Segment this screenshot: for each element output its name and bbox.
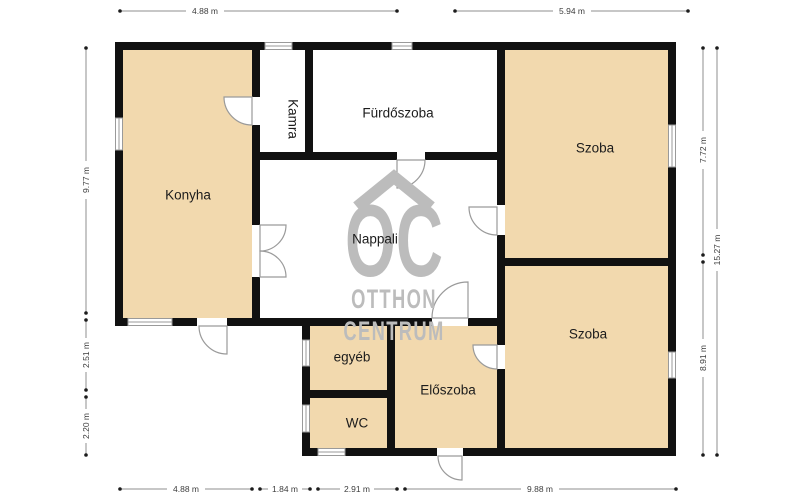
dim-label-left-1: 9.77 m	[81, 167, 91, 193]
room-label-szoba-top: Szoba	[576, 141, 615, 156]
dimension-right-2: 8.91 m	[698, 260, 709, 457]
dimension-bottom-2: 1.84 m	[258, 484, 312, 495]
dim-label-top-right: 5.94 m	[559, 6, 585, 16]
window-wc-bottom	[318, 449, 345, 456]
room-label-nappali: Nappali	[352, 232, 398, 247]
dimension-top-right: 5.94 m	[453, 6, 690, 17]
room-label-kamra: Kamra	[286, 99, 301, 139]
door-szoba-top	[469, 207, 497, 235]
watermark-line1: OTTHON	[351, 283, 437, 313]
dim-label-bottom-4: 9.88 m	[527, 484, 553, 494]
floor-plan-page: 4.88 m 5.94 m 4.88 m 1.84 m 2.91 m 9.88 …	[0, 0, 800, 503]
dimension-left-2: 2.51 m	[81, 318, 92, 392]
room-label-konyha: Konyha	[165, 188, 211, 203]
window-szoba-bottom-right	[669, 352, 676, 378]
watermark: OC OTTHON CENTRUM	[343, 177, 444, 346]
room-area-konyha	[123, 50, 252, 318]
dim-label-left-2: 2.51 m	[81, 342, 91, 368]
dim-label-bottom-1: 4.88 m	[173, 484, 199, 494]
dimension-top-left: 4.88 m	[118, 6, 399, 17]
window-egyeb-left	[303, 340, 310, 366]
dimension-right-total: 15.27 m	[712, 46, 723, 457]
window-konyha-left	[116, 118, 123, 150]
dimension-left-1: 9.77 m	[81, 46, 92, 315]
dim-label-left-3: 2.20 m	[81, 413, 91, 439]
door-entrance	[438, 456, 462, 480]
dimension-right-1: 7.72 m	[698, 46, 709, 257]
dimension-left-3: 2.20 m	[81, 395, 92, 457]
dim-label-right-total: 15.27 m	[712, 235, 722, 266]
dim-label-right-1: 7.72 m	[698, 137, 708, 163]
room-label-szoba-bottom: Szoba	[569, 327, 608, 342]
door-konyha-nappali-1	[260, 225, 286, 251]
door-konyha-nappali-2	[260, 251, 286, 277]
window-furdoszoba-top	[392, 43, 412, 50]
floor-plan-canvas: 4.88 m 5.94 m 4.88 m 1.84 m 2.91 m 9.88 …	[0, 0, 800, 503]
door-konyha-exterior	[199, 326, 227, 354]
dim-label-right-2: 8.91 m	[698, 345, 708, 371]
room-label-egyeb: egyéb	[334, 350, 371, 365]
room-label-furdoszoba: Fürdőszoba	[362, 106, 434, 121]
dim-label-bottom-2: 1.84 m	[272, 484, 298, 494]
window-wc-left	[303, 405, 310, 432]
window-konyha-bottom	[128, 319, 172, 326]
window-szoba-top-right	[669, 125, 676, 167]
window-kamra-top	[265, 43, 292, 50]
dimension-bottom-1: 4.88 m	[118, 484, 254, 495]
room-area-szoba-bottom	[505, 266, 668, 448]
room-label-eloszoba: Előszoba	[420, 383, 476, 398]
watermark-line2: CENTRUM	[343, 315, 444, 345]
dim-label-bottom-3: 2.91 m	[344, 484, 370, 494]
dimension-bottom-4: 9.88 m	[403, 484, 678, 495]
dim-label-top-left: 4.88 m	[192, 6, 218, 16]
room-label-wc: WC	[346, 416, 369, 431]
dimension-bottom-3: 2.91 m	[316, 484, 399, 495]
